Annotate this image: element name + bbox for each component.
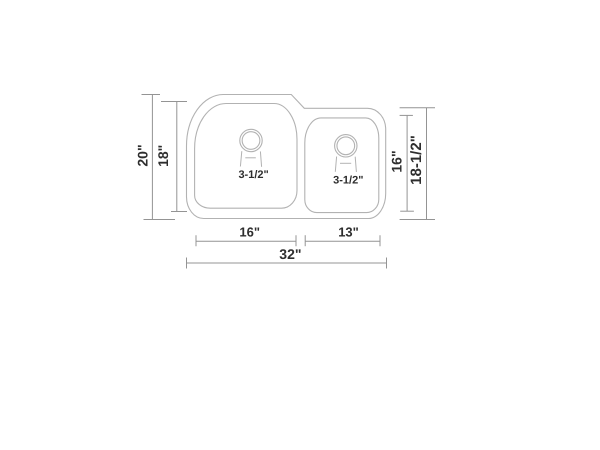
svg-text:20": 20" xyxy=(135,144,151,166)
svg-text:3-1/2": 3-1/2" xyxy=(333,175,363,187)
svg-text:16": 16" xyxy=(389,150,405,172)
svg-text:3-1/2": 3-1/2" xyxy=(238,169,268,181)
svg-text:18-1/2": 18-1/2" xyxy=(408,135,425,185)
svg-text:32": 32" xyxy=(279,246,301,262)
svg-text:18": 18" xyxy=(155,145,171,167)
svg-text:13": 13" xyxy=(338,224,359,239)
svg-text:16": 16" xyxy=(239,224,260,239)
